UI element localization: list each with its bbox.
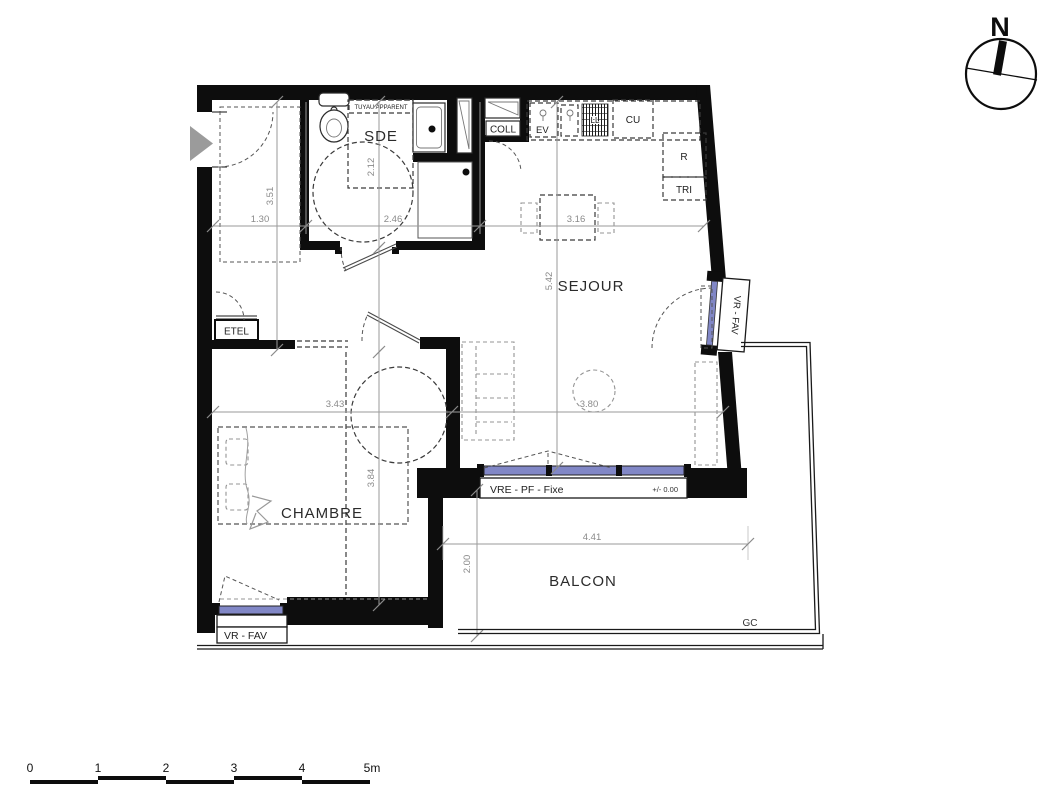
room-label-sejour: SEJOUR <box>558 278 625 295</box>
dim-label-3-84: 3.84 <box>366 469 377 488</box>
north-label: N <box>990 12 1010 42</box>
floor-plan-page: VRE - PF - Fixe +/- 0.00 VR - FAV VR - F… <box>0 0 1046 800</box>
dim-label-3-43: 3.43 <box>326 399 345 410</box>
room-label-chambre: CHAMBRE <box>281 505 363 522</box>
dim-label-4-41: 4.41 <box>583 532 602 543</box>
scale-tick-3: 3 <box>231 761 238 775</box>
chambre-door <box>362 312 420 343</box>
window-vr-fav-bottom: VR - FAV <box>211 603 289 643</box>
dim-label-3-51: 3.51 <box>265 187 276 206</box>
faucet-icon <box>540 110 546 116</box>
fixture-label-tuyau: TUYAU APPARENT <box>354 105 407 111</box>
sde-fixtures: TUYAU APPARENT COLL <box>313 93 520 242</box>
vre-glazing <box>484 466 684 475</box>
fixture-label-etel: ETEL <box>224 327 249 338</box>
scale-tick-0: 0 <box>27 761 34 775</box>
shower-icon <box>418 162 472 238</box>
fixture-label-gc: GC <box>743 618 758 629</box>
room-label-sde: SDE <box>364 128 398 145</box>
toilet-icon <box>319 93 349 142</box>
scale-tick-5m: 5m <box>364 761 381 775</box>
dim-label-2-12: 2.12 <box>366 158 377 177</box>
scale-tick-1: 1 <box>95 761 102 775</box>
fixture-label-coll: COLL <box>490 125 517 136</box>
sofa <box>462 342 514 440</box>
faucet-icon-2 <box>567 110 573 116</box>
tv-unit <box>695 362 717 465</box>
dim-label-2-00: 2.00 <box>462 555 473 574</box>
fixture-label-cu: CU <box>626 115 640 126</box>
fixture-label-ll: LL <box>591 116 600 125</box>
scale-tick-2: 2 <box>163 761 170 775</box>
fixture-label-ev: EV <box>536 125 549 136</box>
entry-door-swing <box>218 112 273 167</box>
room-label-balcon: BALCON <box>549 573 617 590</box>
coll-duct-icon: COLL <box>485 98 520 136</box>
window-label-vre: VRE - PF - Fixe <box>490 484 564 496</box>
dim-label-3-16: 3.16 <box>567 214 586 225</box>
fixture-label-r: R <box>680 152 687 163</box>
etel-panel: ETEL <box>215 292 258 340</box>
sde-turning-circle <box>313 142 413 242</box>
vr-fav-bottom-swing <box>219 576 279 602</box>
dim-label-2-46: 2.46 <box>384 214 403 225</box>
scale-tick-4: 4 <box>299 761 306 775</box>
coll-door-swing <box>489 141 521 171</box>
dim-label-1-30: 1.30 <box>251 214 270 225</box>
dim-label-5-42: 5.42 <box>544 272 555 291</box>
window-vre-pf-fixe: VRE - PF - Fixe +/- 0.00 <box>477 464 691 498</box>
vr-fav-bottom-glazing <box>219 606 283 614</box>
chambre-turning-circle <box>351 367 447 463</box>
entry-arrow-icon <box>190 126 213 161</box>
north-arrow-icon: N <box>966 12 1037 109</box>
fixture-label-tri: TRI <box>676 185 692 196</box>
dim-label-3-80: 3.80 <box>580 399 599 410</box>
washbasin-icon <box>413 103 445 152</box>
floor-plan-drawing: VRE - PF - Fixe +/- 0.00 VR - FAV VR - F… <box>0 0 1046 800</box>
window-label-vr-fav-bottom: VR - FAV <box>224 630 267 642</box>
scale-bar: 0 1 2 3 4 5m <box>27 761 381 784</box>
duct-icon <box>457 98 472 153</box>
sde-door <box>341 244 397 271</box>
vr-fav-right-swing <box>652 286 712 348</box>
window-vr-fav-right: VR - FAV <box>701 271 751 358</box>
entry-closet <box>220 107 300 262</box>
level-marker: +/- 0.00 <box>652 485 678 494</box>
